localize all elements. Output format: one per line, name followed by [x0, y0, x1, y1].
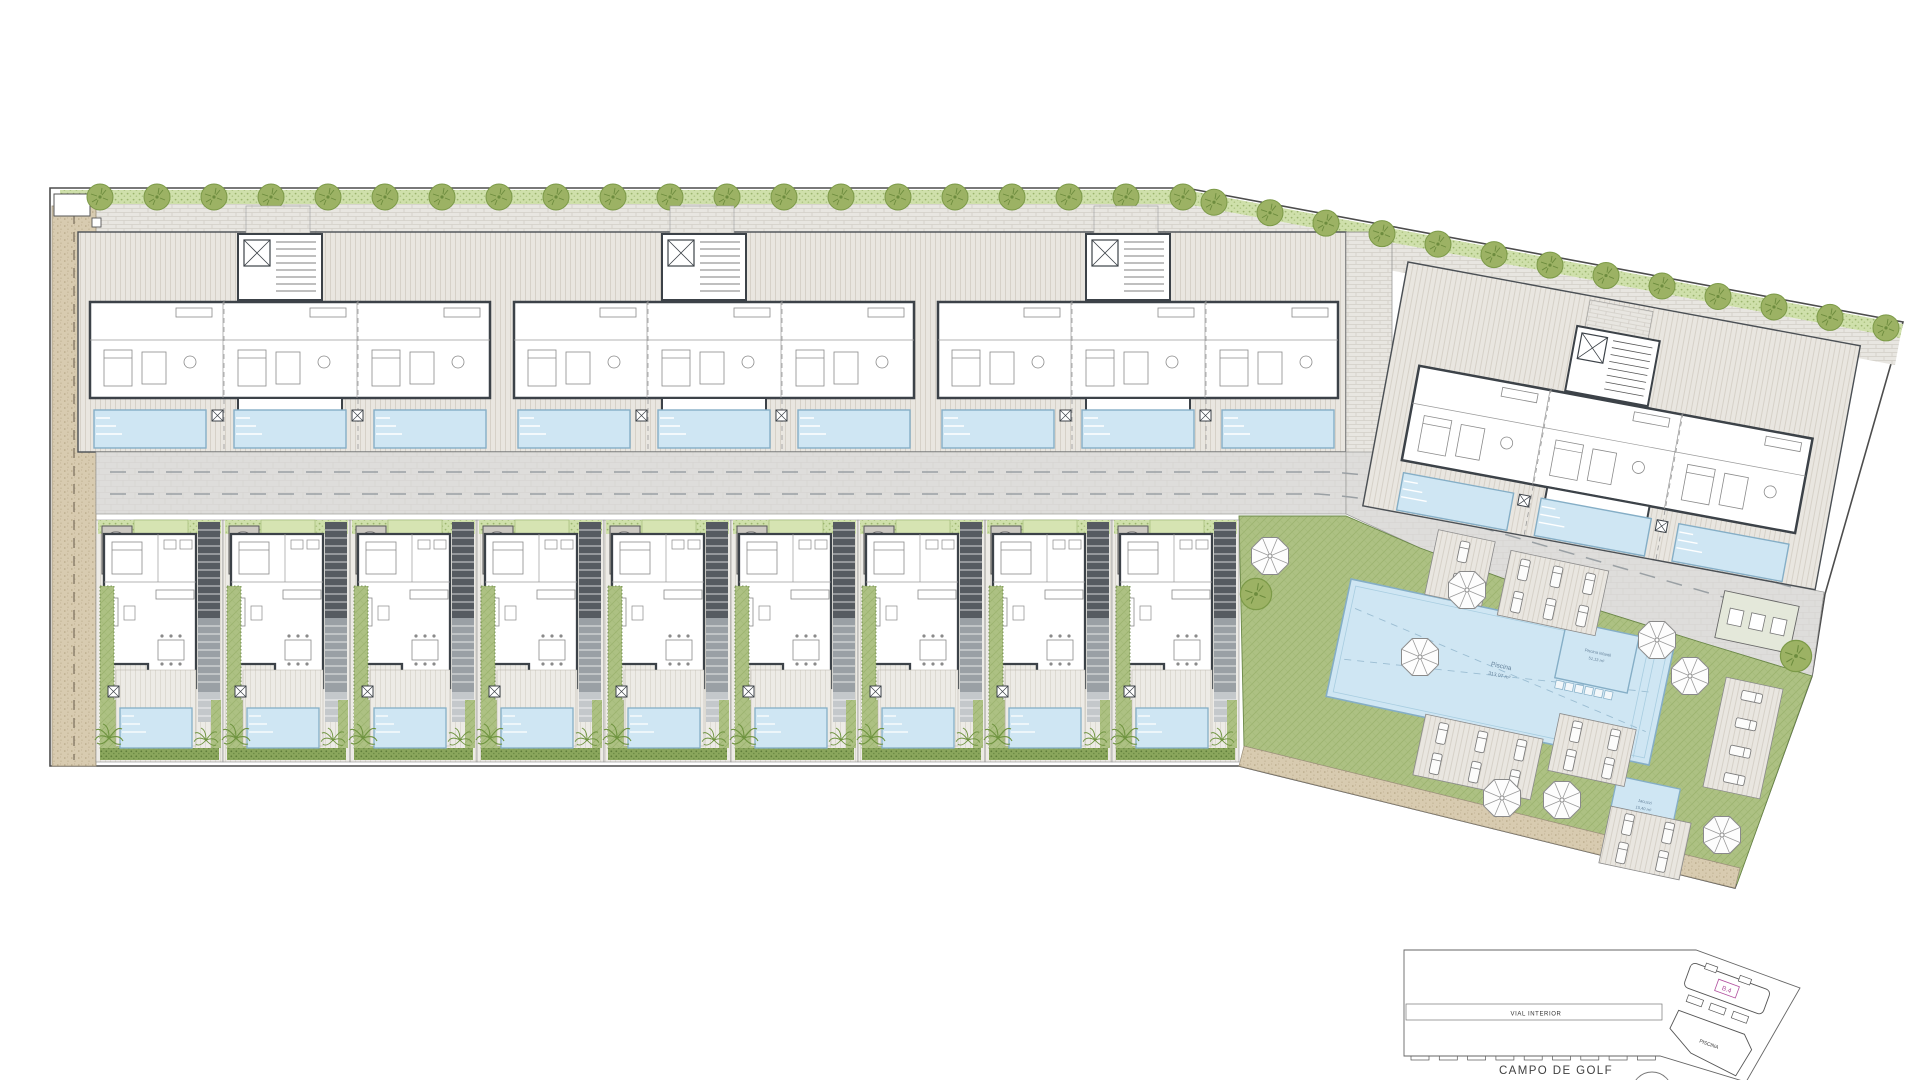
parasol-icon: [1449, 572, 1486, 609]
villa-V2: [222, 520, 350, 762]
tree-icon: [771, 184, 797, 210]
stairs-icon: [706, 522, 728, 722]
stairs-icon: [960, 522, 982, 722]
tree-icon: [1240, 578, 1271, 609]
parasol-icon: [1672, 658, 1709, 695]
golf-tree-symbol: [1632, 1072, 1672, 1080]
tree-icon: [1313, 210, 1339, 236]
pool-icon: [798, 410, 910, 448]
block-B.2-core: [662, 234, 746, 300]
stairs-icon: [198, 522, 220, 722]
tree-icon: [1170, 184, 1196, 210]
tree-icon: [201, 184, 227, 210]
tree-icon: [1537, 252, 1563, 278]
tree-icon: [1425, 231, 1451, 257]
tree-icon: [999, 184, 1025, 210]
tree-icon: [1481, 242, 1507, 268]
site-plan-drawing: Piscina 313,07 m² Piscina infantil 51,13…: [0, 0, 1920, 1080]
pool-icon: [247, 708, 319, 748]
pool-icon: [94, 410, 206, 448]
parasol-icon: [1704, 817, 1741, 854]
block-B.3-core: [1086, 234, 1170, 300]
pool-icon: [658, 410, 770, 448]
villa-V6: [730, 520, 858, 762]
tree-icon: [144, 184, 170, 210]
tree-icon: [1056, 184, 1082, 210]
tree-icon: [1873, 315, 1899, 341]
stairs-icon: [325, 522, 347, 722]
block-B.4-units-core: [1565, 326, 1660, 406]
pool-icon: [755, 708, 827, 748]
villa-V7: [857, 520, 985, 762]
tree-icon: [1761, 294, 1787, 320]
pool-icon: [1136, 708, 1208, 748]
stairs-icon: [452, 522, 474, 722]
tree-icon: [1817, 304, 1843, 330]
tree-icon: [828, 184, 854, 210]
tree-icon: [429, 184, 455, 210]
pool-icon: [374, 708, 446, 748]
pool-icon: [120, 708, 192, 748]
parasol-icon: [1402, 639, 1439, 676]
parasol-icon: [1484, 780, 1521, 817]
pool-icon: [1082, 410, 1194, 448]
entrance-kiosk: [54, 194, 90, 216]
block-B.1-core: [238, 234, 322, 300]
villa-V4: [476, 520, 604, 762]
tree-icon: [1369, 221, 1395, 247]
parasol-icon: [1639, 622, 1676, 659]
pool-icon: [518, 410, 630, 448]
tree-icon: [1593, 263, 1619, 289]
tree-icon: [1257, 200, 1283, 226]
stairs-icon: [579, 522, 601, 722]
key-plan: VIAL INTERIOR CAMPO DE GOLF B.4 PISCINA: [1404, 950, 1800, 1080]
parasol-icon: [1544, 782, 1581, 819]
tree-icon: [543, 184, 569, 210]
tree-icon: [372, 184, 398, 210]
villa-V8: [984, 520, 1112, 762]
pool-icon: [234, 410, 346, 448]
villa-V5: [603, 520, 731, 762]
villa-V1: [95, 520, 223, 762]
tree-icon: [315, 184, 341, 210]
tree-icon: [600, 184, 626, 210]
tree-icon: [87, 184, 113, 210]
stairs-icon: [833, 522, 855, 722]
tree-icon: [1201, 189, 1227, 215]
tree-icon: [1649, 273, 1675, 299]
pool-icon: [1009, 708, 1081, 748]
villa-V9: [1111, 520, 1239, 762]
pool-icon: [882, 708, 954, 748]
pool-icon: [374, 410, 486, 448]
tree-icon: [1705, 283, 1731, 309]
villa-V3: [349, 520, 477, 762]
stairs-icon: [1087, 522, 1109, 722]
tree-icon: [885, 184, 911, 210]
pool-icon: [501, 708, 573, 748]
golf-course-label: CAMPO DE GOLF: [1499, 1065, 1613, 1077]
tree-icon: [1780, 640, 1811, 671]
pool-icon: [942, 410, 1054, 448]
pool-icon: [628, 708, 700, 748]
tree-icon: [942, 184, 968, 210]
key-plan-road-label: VIAL INTERIOR: [1511, 1012, 1562, 1018]
pool-icon: [1222, 410, 1334, 448]
parasol-icon: [1252, 538, 1289, 575]
tree-icon: [486, 184, 512, 210]
stairs-icon: [1214, 522, 1236, 722]
